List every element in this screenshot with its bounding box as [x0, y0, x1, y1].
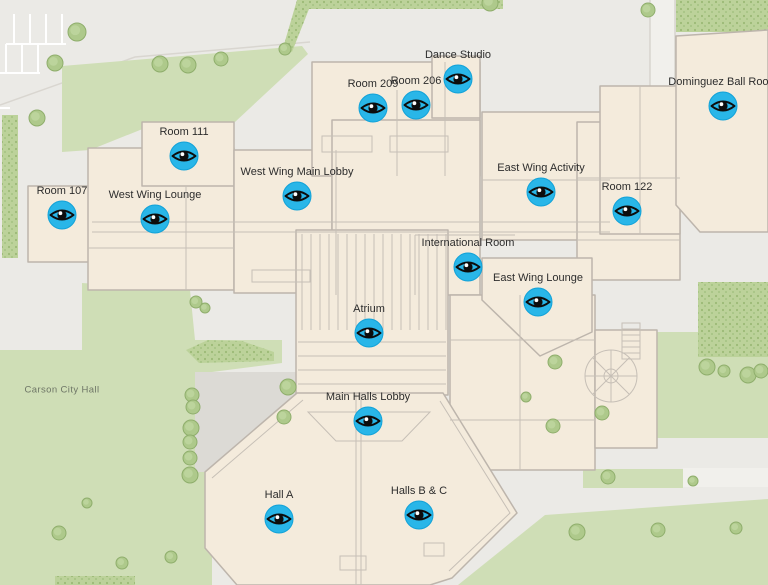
camera-marker-main-halls-lobby[interactable]: Main Halls Lobby — [353, 406, 383, 436]
marker-label: West Wing Main Lobby — [241, 166, 354, 178]
eye-icon[interactable] — [708, 91, 738, 121]
marker-label: Main Halls Lobby — [326, 391, 410, 403]
camera-marker-room-209[interactable]: Room 209 — [358, 93, 388, 123]
camera-marker-halls-b-c[interactable]: Halls B & C — [404, 500, 434, 530]
eye-icon[interactable] — [354, 318, 384, 348]
camera-marker-atrium[interactable]: Atrium — [354, 318, 384, 348]
camera-marker-room-122[interactable]: Room 122 — [612, 196, 642, 226]
camera-marker-west-wing-lounge[interactable]: West Wing Lounge — [140, 204, 170, 234]
eye-icon[interactable] — [453, 252, 483, 282]
marker-label: Room 206 — [391, 75, 442, 87]
eye-icon[interactable] — [443, 64, 473, 94]
camera-marker-room-107[interactable]: Room 107 — [47, 200, 77, 230]
marker-label: Halls B & C — [391, 485, 447, 497]
marker-label: Atrium — [353, 303, 385, 315]
marker-label: Room 111 — [159, 126, 208, 138]
marker-label: East Wing Lounge — [493, 272, 583, 284]
marker-label: West Wing Lounge — [109, 189, 202, 201]
camera-marker-east-wing-activity[interactable]: East Wing Activity — [526, 177, 556, 207]
marker-label: Dominguez Ball Room — [668, 76, 768, 88]
camera-marker-west-wing-main-lobby[interactable]: West Wing Main Lobby — [282, 181, 312, 211]
camera-map-view: Carson City Hall Room 107 West Wing Loun… — [0, 0, 768, 585]
eye-icon[interactable] — [264, 504, 294, 534]
eye-icon[interactable] — [140, 204, 170, 234]
eye-icon[interactable] — [47, 200, 77, 230]
camera-marker-east-wing-lounge[interactable]: East Wing Lounge — [523, 287, 553, 317]
eye-icon[interactable] — [353, 406, 383, 436]
marker-label: Dance Studio — [425, 49, 491, 61]
camera-markers-layer: Room 107 West Wing Lounge Room 111 West … — [0, 0, 768, 585]
eye-icon[interactable] — [526, 177, 556, 207]
eye-icon[interactable] — [612, 196, 642, 226]
marker-label: Room 107 — [37, 185, 88, 197]
camera-marker-room-111[interactable]: Room 111 — [169, 141, 199, 171]
camera-marker-dance-studio[interactable]: Dance Studio — [443, 64, 473, 94]
marker-label: Room 122 — [602, 181, 653, 193]
marker-label: International Room — [422, 237, 515, 249]
eye-icon[interactable] — [358, 93, 388, 123]
camera-marker-dominguez-ball-room[interactable]: Dominguez Ball Room — [708, 91, 738, 121]
camera-marker-room-206[interactable]: Room 206 — [401, 90, 431, 120]
camera-marker-hall-a[interactable]: Hall A — [264, 504, 294, 534]
camera-marker-international-room[interactable]: International Room — [453, 252, 483, 282]
marker-label: East Wing Activity — [497, 162, 584, 174]
eye-icon[interactable] — [523, 287, 553, 317]
eye-icon[interactable] — [169, 141, 199, 171]
eye-icon[interactable] — [282, 181, 312, 211]
marker-label: Hall A — [265, 489, 294, 501]
eye-icon[interactable] — [401, 90, 431, 120]
eye-icon[interactable] — [404, 500, 434, 530]
